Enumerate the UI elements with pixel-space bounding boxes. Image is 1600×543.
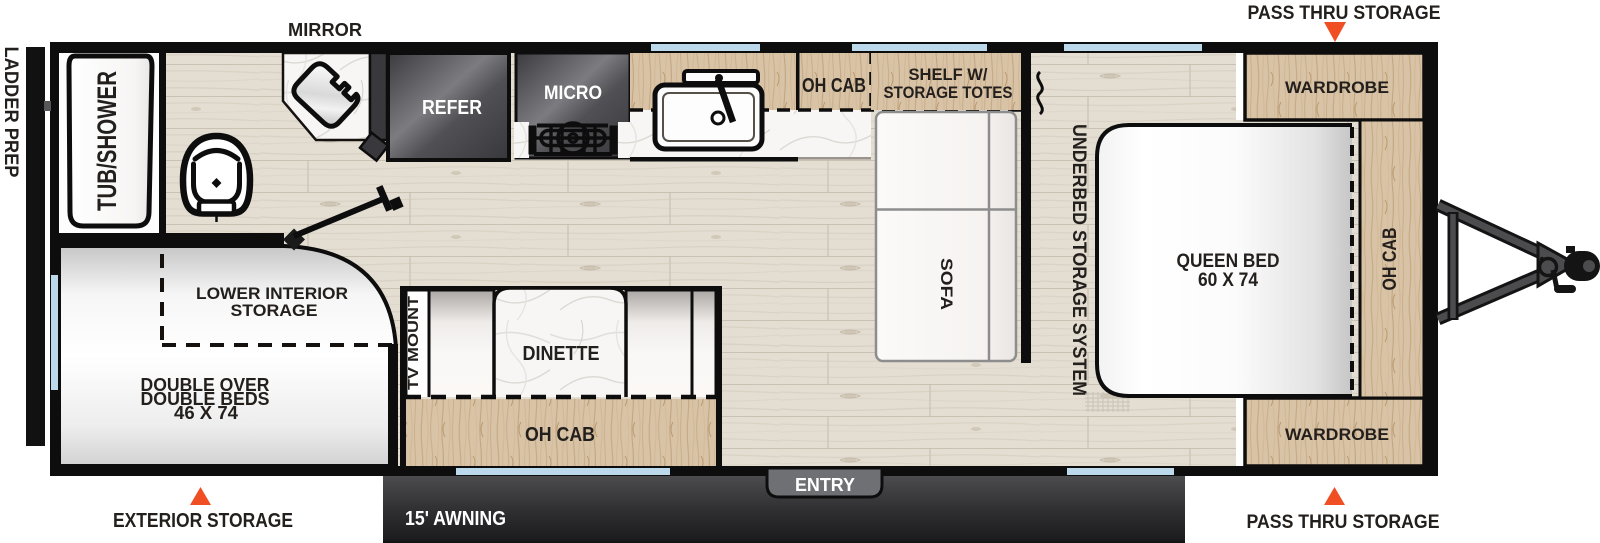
svg-text:ENTRY: ENTRY xyxy=(795,475,855,495)
svg-text:QUEEN BED: QUEEN BED xyxy=(1177,251,1280,272)
svg-text:MIRROR: MIRROR xyxy=(288,20,362,40)
svg-text:LOWER INTERIOR: LOWER INTERIOR xyxy=(196,285,348,303)
svg-text:SHELF W/: SHELF W/ xyxy=(909,66,988,84)
svg-text:STORAGE TOTES: STORAGE TOTES xyxy=(884,84,1013,102)
svg-text:46 X 74: 46 X 74 xyxy=(174,402,239,423)
svg-text:TUB/SHOWER: TUB/SHOWER xyxy=(92,71,122,211)
svg-text:WARDROBE: WARDROBE xyxy=(1285,426,1389,444)
svg-text:SOFA: SOFA xyxy=(937,258,956,310)
svg-text:OH CAB: OH CAB xyxy=(525,424,595,446)
svg-text:MICRO: MICRO xyxy=(544,83,602,104)
svg-text:TV MOUNT: TV MOUNT xyxy=(405,296,422,390)
svg-text:DINETTE: DINETTE xyxy=(523,343,600,365)
svg-text:WARDROBE: WARDROBE xyxy=(1285,79,1389,97)
svg-text:STORAGE: STORAGE xyxy=(231,302,318,320)
svg-text:OH CAB: OH CAB xyxy=(1380,228,1401,291)
svg-text:UNDERBED STORAGE SYSTEM: UNDERBED STORAGE SYSTEM xyxy=(1068,124,1089,396)
svg-text:PASS THRU STORAGE: PASS THRU STORAGE xyxy=(1248,3,1441,24)
svg-text:PASS THRU STORAGE: PASS THRU STORAGE xyxy=(1247,512,1440,533)
svg-text:EXTERIOR STORAGE: EXTERIOR STORAGE xyxy=(113,510,293,532)
svg-text:REFER: REFER xyxy=(422,97,482,119)
svg-text:60 X 74: 60 X 74 xyxy=(1198,270,1258,291)
svg-text:15' AWNING: 15' AWNING xyxy=(405,508,506,530)
svg-text:OH CAB: OH CAB xyxy=(802,75,866,97)
svg-text:LADDER PREP: LADDER PREP xyxy=(0,47,21,178)
